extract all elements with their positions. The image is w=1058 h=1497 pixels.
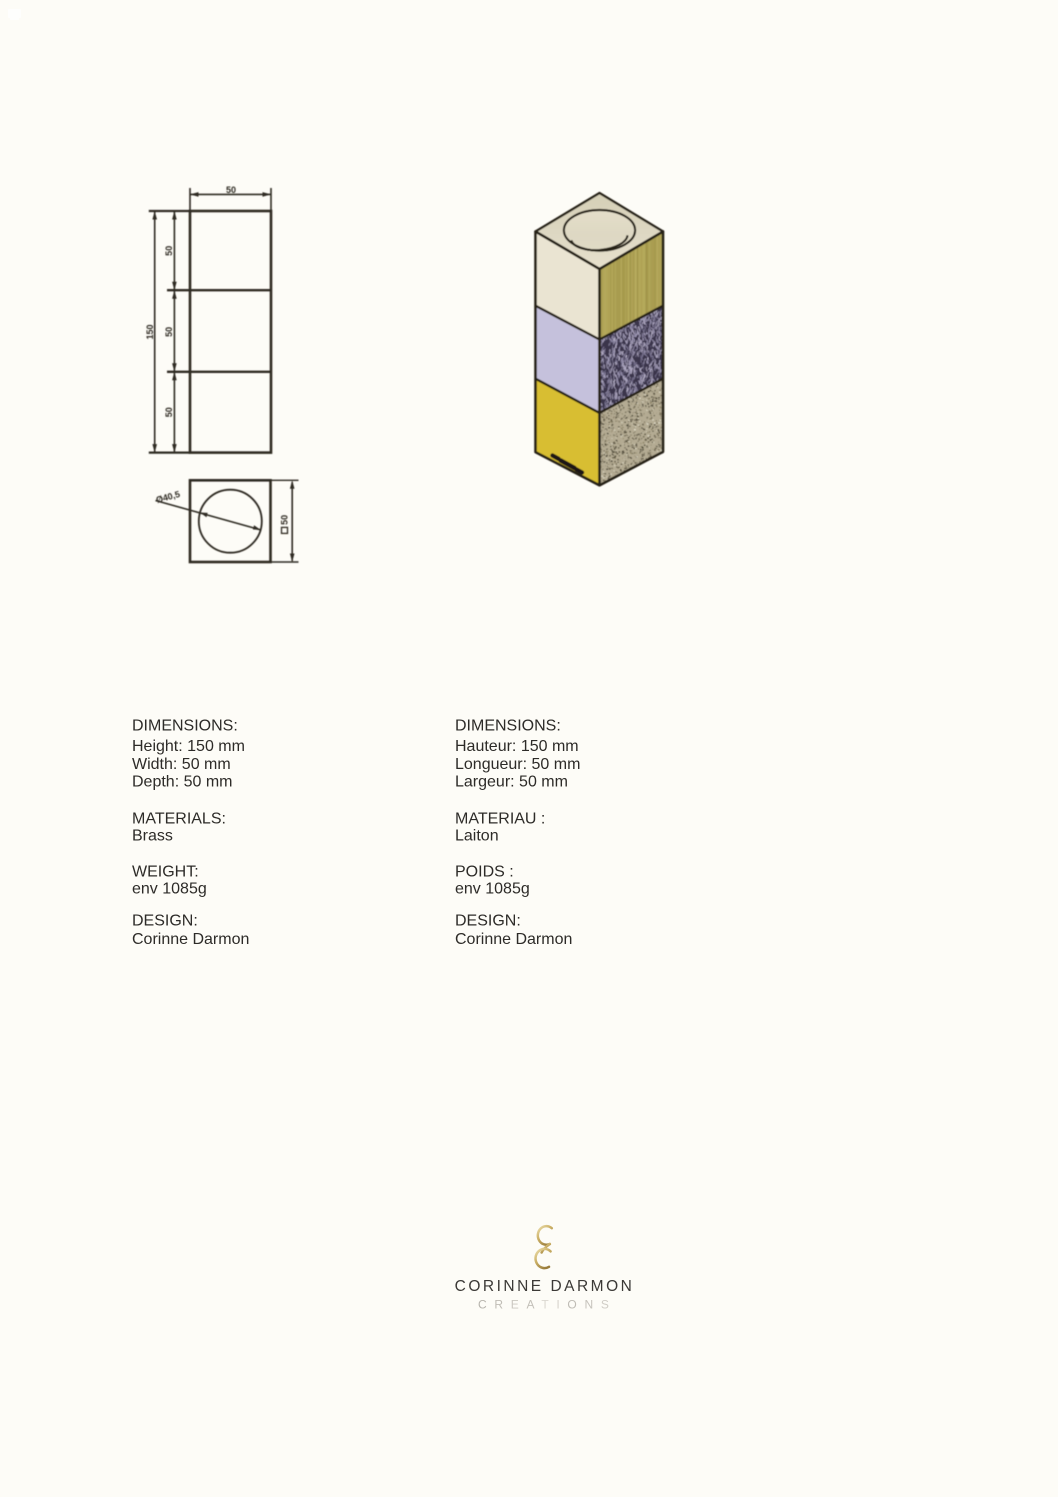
svg-text:WEIGHT:: WEIGHT:	[132, 864, 199, 881]
svg-text:MATERIALS:: MATERIALS:	[132, 811, 226, 828]
svg-text:Corinne Darmon: Corinne Darmon	[132, 931, 249, 948]
svg-text:Largeur: 50 mm: Largeur: 50 mm	[455, 774, 568, 791]
svg-text:env 1085g: env 1085g	[455, 881, 530, 898]
svg-text:Laiton: Laiton	[455, 828, 499, 845]
svg-text:50: 50	[226, 185, 236, 195]
svg-text:DESIGN:: DESIGN:	[132, 913, 198, 930]
svg-text:Longueur: 50 mm: Longueur: 50 mm	[455, 756, 580, 773]
svg-text:Depth: 50 mm: Depth: 50 mm	[132, 774, 232, 791]
svg-text:50: 50	[164, 246, 174, 256]
svg-text:POIDS :: POIDS :	[455, 864, 514, 881]
svg-text:MATERIAU :: MATERIAU :	[455, 811, 545, 828]
svg-text:DIMENSIONS:: DIMENSIONS:	[455, 718, 561, 735]
svg-text:Brass: Brass	[132, 828, 173, 845]
svg-text:CREATIONS: CREATIONS	[478, 1298, 617, 1312]
svg-text:50: 50	[164, 407, 174, 417]
svg-text:DESIGN:: DESIGN:	[455, 913, 521, 930]
svg-text:env 1085g: env 1085g	[132, 881, 207, 898]
svg-text:DIMENSIONS:: DIMENSIONS:	[132, 718, 238, 735]
svg-text:CORINNE DARMON: CORINNE DARMON	[455, 1278, 635, 1295]
svg-text:Corinne Darmon: Corinne Darmon	[455, 931, 572, 948]
svg-text:Height: 150 mm: Height: 150 mm	[132, 738, 245, 755]
svg-text:150: 150	[145, 324, 155, 339]
svg-text:Width: 50 mm: Width: 50 mm	[132, 756, 231, 773]
svg-text:50: 50	[280, 515, 290, 525]
svg-text:50: 50	[164, 327, 174, 337]
svg-text:Hauteur: 150 mm: Hauteur: 150 mm	[455, 738, 579, 755]
